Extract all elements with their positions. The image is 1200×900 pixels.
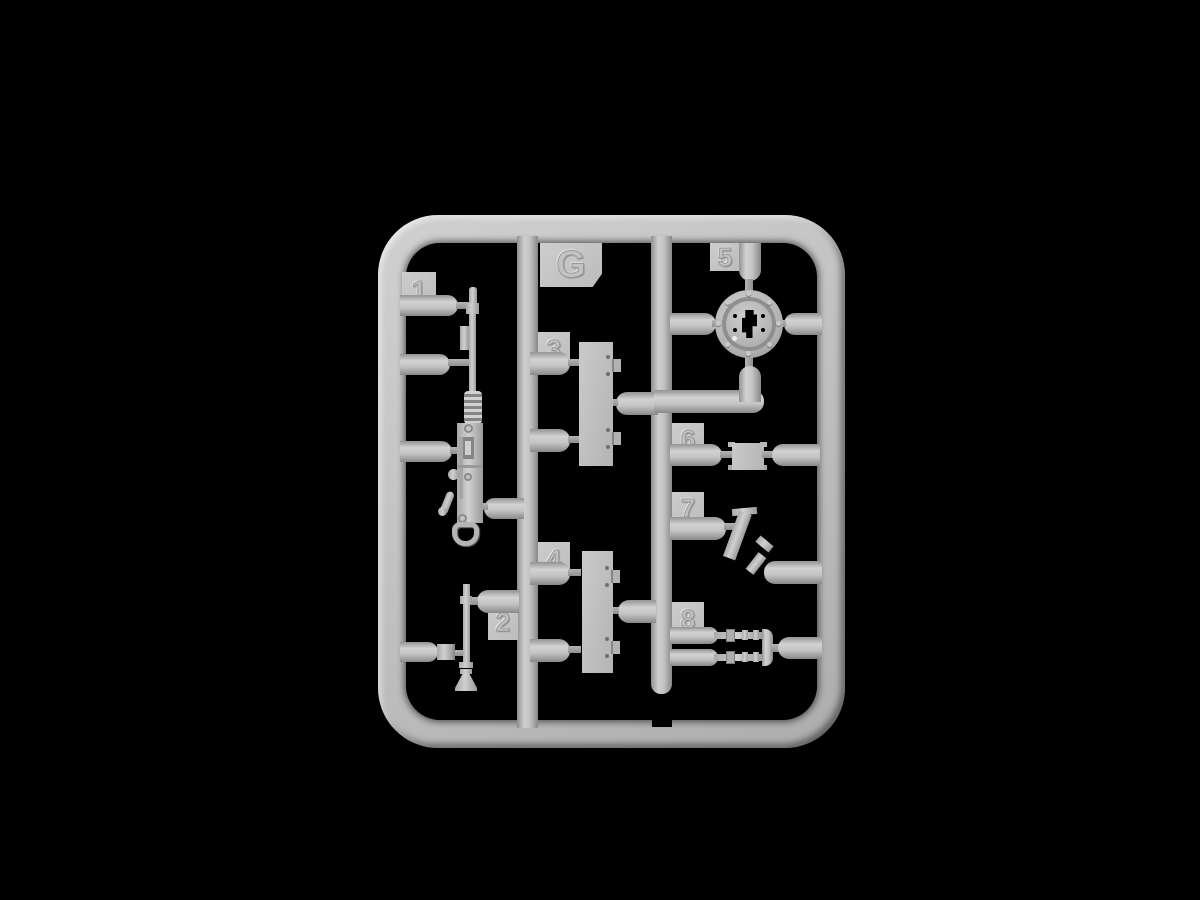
runner-lug (739, 243, 761, 281)
gun-feed-slot-inner (465, 441, 471, 455)
gun-receiver-joint (457, 465, 483, 468)
ring-rivet (776, 321, 781, 326)
runner-lug (739, 366, 761, 402)
runner-lug (670, 444, 722, 466)
hinge-pin-dot (606, 355, 610, 359)
rail-gap-notch (652, 719, 672, 727)
gun-charging-knob (448, 469, 459, 480)
hinge-pin-dot (605, 583, 609, 587)
ring-rivet (746, 291, 751, 296)
ring-bolt-hole (733, 314, 737, 318)
runner-lug (530, 352, 570, 375)
hinge-pin-dot (606, 372, 610, 376)
runner-lug (764, 561, 822, 584)
gun-rear-sight-ring (464, 424, 473, 433)
ring-bolt-hole (761, 314, 765, 318)
runner-pin (448, 359, 469, 366)
ring-rivet (746, 351, 751, 356)
hatch-hinge (611, 641, 620, 654)
runner-lug (400, 441, 452, 462)
hinge-pin-dot (606, 428, 610, 432)
runner-lug (670, 517, 726, 540)
runner-lug (530, 639, 570, 662)
runner-lug (530, 429, 570, 452)
barrel-ring (460, 669, 472, 674)
ring-rivet (725, 342, 730, 347)
part-number-label: 5 (718, 244, 732, 270)
rod-band (742, 630, 748, 640)
runner-lug (670, 649, 718, 666)
rod-band (742, 652, 748, 662)
runner-lug (670, 313, 716, 335)
runner-lug (772, 444, 820, 466)
runner-lug (670, 627, 718, 644)
runner-lug (484, 498, 524, 519)
runner-lug (784, 313, 822, 335)
ring-rivet (767, 342, 772, 347)
gun-trigger-knob (438, 507, 447, 516)
ring-rivet (767, 300, 772, 305)
barrel-rod (463, 584, 470, 646)
runner-lug (530, 562, 570, 585)
hinge-pin-dot (605, 637, 609, 641)
ring-highlight-dot (732, 336, 737, 341)
barrel-ring (459, 662, 473, 668)
ring-rivet (725, 300, 730, 305)
runner-pin (568, 569, 581, 576)
part-5-mount-ring (715, 290, 783, 358)
sprue-photo: G 1 2 3 4 5 6 7 8 (0, 0, 1200, 900)
gun-barrel (469, 313, 476, 393)
hinge-pin-dot (606, 445, 610, 449)
rail-center-right (651, 236, 672, 694)
ring-bolt-hole (733, 328, 737, 332)
runner-lug (618, 600, 656, 623)
rod-clamp (726, 651, 735, 664)
runner-pin (568, 646, 581, 653)
tab-number-5: 5 (710, 243, 740, 271)
gun-side-stripe (459, 437, 463, 499)
ring-bolt-hole (761, 328, 765, 332)
sprue-letter-label: G (556, 246, 586, 284)
gun-cooling-jacket (464, 391, 482, 424)
runner-lug (778, 637, 822, 659)
barrel-clamp (437, 644, 455, 660)
hatch-hinge (611, 570, 620, 583)
runner-lug (400, 642, 438, 662)
runner-lug (400, 354, 450, 375)
hinge-pin-dot (605, 654, 609, 658)
rod-clamp (726, 629, 735, 642)
ring-rivet (716, 321, 721, 326)
coupler-body (732, 443, 764, 470)
hatch-hinge (612, 432, 621, 445)
runner-lug (477, 590, 519, 613)
rod-band (753, 630, 759, 640)
hinge-pin-dot (605, 566, 609, 570)
gun-front-sight-block (460, 326, 469, 350)
hatch-hinge (612, 359, 621, 372)
barrel-band (460, 596, 472, 604)
gun-pivot-pin (464, 473, 472, 481)
runner-lug (400, 295, 458, 316)
runner-lug (616, 392, 658, 415)
tab-letter-g: G (540, 243, 602, 287)
rod-band (753, 652, 759, 662)
gun-spade-loop (452, 522, 479, 546)
